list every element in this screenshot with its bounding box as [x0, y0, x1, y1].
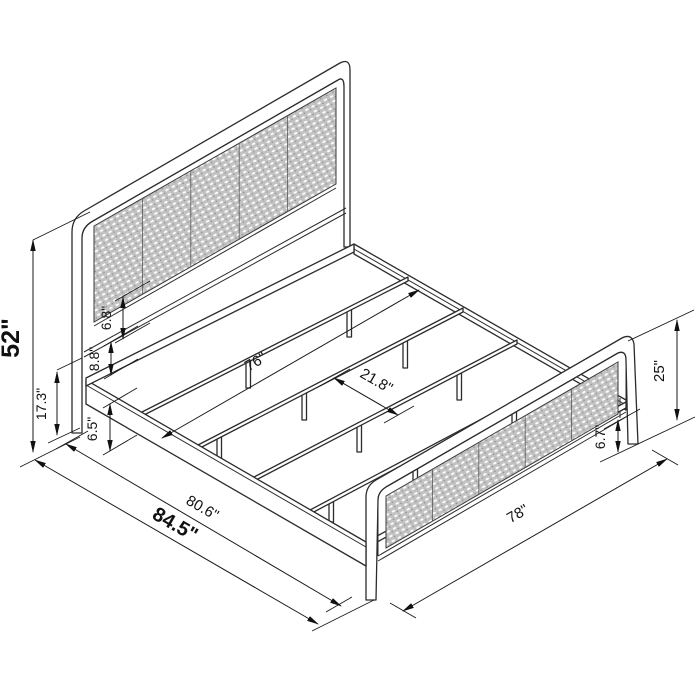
bed-frame-deck — [142, 244, 626, 548]
dim-label-headboard-height: 52" — [0, 318, 25, 358]
slat-leg — [357, 424, 362, 452]
dim-label-underbed-clearance: 6.5" — [84, 417, 100, 441]
dim-slat-spacing: 21.8" — [320, 365, 414, 423]
bed-dimension-diagram: 52" 17.3" 6.5" 8.8" 6.8" — [0, 0, 700, 700]
dim-label-overall-width: 78" — [504, 501, 532, 527]
slat-leg — [403, 340, 408, 368]
dim-label-footboard-height: 25" — [651, 360, 668, 382]
headboard-cane-panel — [94, 88, 336, 322]
dim-label-slat-spacing: 21.8" — [357, 365, 395, 397]
slat-leg — [302, 392, 307, 420]
slat-leg — [457, 372, 462, 400]
dim-label-headboard-panel-gap: 6.8" — [98, 306, 114, 330]
footboard — [366, 336, 638, 600]
dim-label-footboard-clearance: 6.7" — [592, 425, 608, 449]
dim-label-rail-floor-height: 17.3" — [33, 388, 49, 420]
dim-overall-length: 84.5" — [35, 460, 374, 631]
slat-leg — [347, 309, 352, 337]
diagram-canvas: 52" 17.3" 6.5" 8.8" 6.8" — [0, 0, 700, 700]
dim-label-headboard-lower-band: 8.8" — [86, 347, 102, 371]
